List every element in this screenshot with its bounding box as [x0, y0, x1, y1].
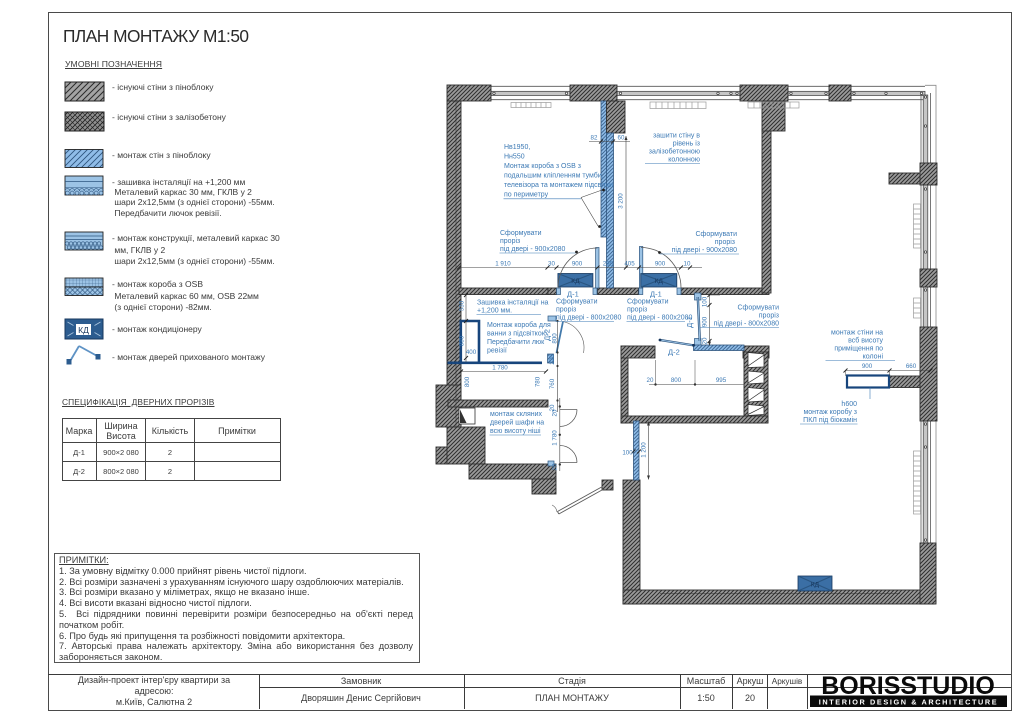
- svg-text:зашити стіну в: зашити стіну в: [653, 132, 700, 140]
- svg-text:Передбачити люк: Передбачити люк: [487, 338, 545, 346]
- svg-text:1 780: 1 780: [552, 430, 559, 446]
- svg-text:Монтаж короба з OSB з: Монтаж короба з OSB з: [504, 162, 581, 170]
- svg-text:приміщення по: приміщення по: [834, 345, 883, 353]
- svg-text:295: 295: [603, 261, 614, 268]
- svg-text:1 780: 1 780: [492, 365, 508, 372]
- svg-text:60: 60: [618, 135, 625, 142]
- svg-text:220: 220: [549, 354, 556, 365]
- svg-text:Зашивка інсталяції на: Зашивка інсталяції на: [477, 299, 549, 307]
- svg-text:проріз: проріз: [556, 306, 576, 314]
- svg-text:100: 100: [702, 296, 709, 307]
- svg-text:100: 100: [622, 450, 633, 457]
- svg-text:780: 780: [535, 376, 542, 387]
- svg-text:ревізії: ревізії: [487, 347, 507, 355]
- svg-text:Монтаж короба для: Монтаж короба для: [487, 321, 551, 329]
- svg-text:Сформувати: Сформувати: [696, 231, 738, 238]
- svg-text:залізобетонною: залізобетонною: [649, 148, 700, 156]
- svg-text:телевізора та монтажем підсвіт: телевізора та монтажем підсвітки: [504, 181, 613, 189]
- svg-text:всб висоту: всб висоту: [848, 337, 883, 345]
- svg-text:дверей шафи на: дверей шафи на: [490, 419, 544, 427]
- svg-text:10: 10: [684, 261, 691, 268]
- svg-text:82: 82: [591, 135, 598, 142]
- svg-text:проріз: проріз: [627, 306, 647, 314]
- svg-text:530: 530: [459, 300, 466, 311]
- svg-text:ПКЛ під біокамін: ПКЛ під біокамін: [803, 416, 857, 424]
- svg-text:Д-1: Д-1: [685, 316, 694, 328]
- svg-text:20: 20: [702, 337, 709, 344]
- svg-text:900: 900: [702, 316, 709, 327]
- svg-text:30: 30: [548, 261, 555, 268]
- svg-text:КД: КД: [811, 582, 820, 589]
- svg-text:ванни з підсвіткою.: ванни з підсвіткою.: [487, 330, 549, 338]
- svg-text:Нв1950,: Нв1950,: [504, 144, 530, 151]
- svg-text:660: 660: [906, 363, 917, 370]
- svg-text:900: 900: [655, 261, 666, 268]
- svg-text:20: 20: [552, 463, 559, 470]
- svg-text:1 910: 1 910: [495, 261, 511, 268]
- svg-text:Сформувати: Сформувати: [500, 230, 542, 237]
- svg-text:880: 880: [459, 335, 466, 346]
- svg-text:405: 405: [624, 261, 635, 268]
- svg-text:під двері - 900х2080: під двері - 900х2080: [672, 246, 738, 254]
- svg-text:20: 20: [647, 377, 654, 384]
- svg-text:Сформувати: Сформувати: [556, 299, 598, 306]
- svg-text:3 200: 3 200: [618, 193, 625, 209]
- svg-text:монтаж стіни на: монтаж стіни на: [831, 329, 883, 337]
- svg-text:під двері - 800х2080: під двері - 800х2080: [714, 320, 780, 328]
- svg-text:Д-2: Д-2: [668, 348, 680, 357]
- svg-text:1 200: 1 200: [641, 442, 648, 458]
- svg-text:рівень із: рівень із: [673, 140, 700, 148]
- svg-text:900: 900: [862, 363, 873, 370]
- svg-text:монтаж коробу з: монтаж коробу з: [803, 408, 857, 416]
- svg-text:Д-1: Д-1: [567, 290, 579, 299]
- svg-text:+1,200 мм.: +1,200 мм.: [477, 308, 512, 315]
- svg-text:проріз: проріз: [759, 312, 779, 320]
- svg-text:монтаж скляних: монтаж скляних: [490, 411, 543, 418]
- svg-text:800: 800: [552, 333, 559, 344]
- svg-text:по периметру: по периметру: [504, 192, 549, 199]
- svg-text:колонною: колонною: [668, 157, 700, 164]
- svg-text:h600: h600: [841, 401, 857, 408]
- svg-text:під двері - 800х2080: під двері - 800х2080: [556, 314, 622, 322]
- svg-text:КД: КД: [571, 278, 580, 285]
- svg-text:Сформувати: Сформувати: [738, 305, 780, 312]
- svg-text:КД: КД: [655, 278, 664, 285]
- svg-text:Нн550: Нн550: [504, 154, 525, 161]
- svg-text:760: 760: [549, 378, 556, 389]
- svg-text:Д-2: Д-2: [543, 329, 552, 341]
- svg-text:Сформувати: Сформувати: [627, 299, 669, 306]
- svg-text:800: 800: [464, 376, 471, 387]
- svg-text:800: 800: [671, 377, 682, 384]
- svg-text:колоні: колоні: [863, 353, 884, 361]
- svg-text:всю висоту ніші: всю висоту ніші: [490, 427, 541, 435]
- svg-text:20: 20: [549, 404, 556, 411]
- svg-text:проріз: проріз: [500, 237, 520, 245]
- svg-text:400: 400: [466, 349, 477, 356]
- svg-text:під двері - 800х2080: під двері - 800х2080: [627, 314, 693, 322]
- svg-text:995: 995: [716, 377, 727, 384]
- svg-text:подальшим кліпленням тумби,: подальшим кліпленням тумби,: [504, 172, 604, 180]
- svg-text:проріз: проріз: [715, 238, 735, 246]
- svg-text:Д-1: Д-1: [650, 290, 662, 299]
- svg-text:під двері - 900х2080: під двері - 900х2080: [500, 245, 566, 253]
- svg-text:900: 900: [572, 261, 583, 268]
